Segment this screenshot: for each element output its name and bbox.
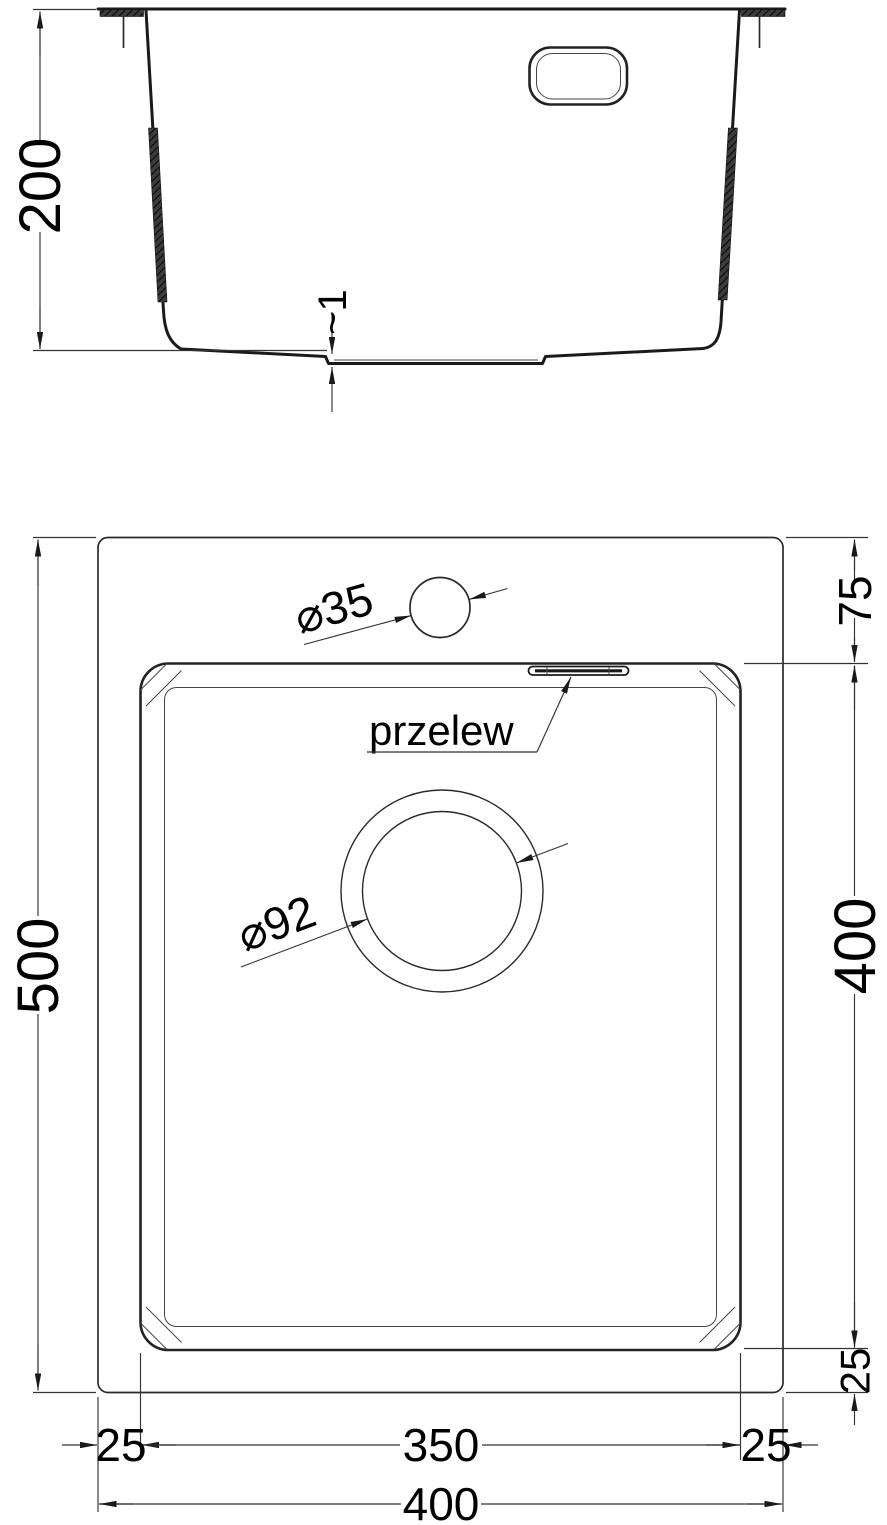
bowl-profile [146,11,740,364]
outer-rect [98,538,783,1393]
overflow-label: przelew [369,707,514,754]
dim-depth-label: 200 [8,138,73,235]
dim-depth-200: 200 [8,10,327,351]
right-wall-clip [718,128,737,300]
drain-inner-circle [363,812,522,971]
dim-margin-left-label: 25 [95,1419,146,1471]
drain-outer-circle [341,790,543,992]
dim-bowl-width-label: 350 [403,1419,480,1471]
overflow-slot [529,667,629,676]
overflow-opening-inner [537,54,621,100]
dim-drain: ⌀92 [230,844,568,968]
bowl-corner-chamfers [141,664,741,1350]
dim-row-bowl-width: 25 350 25 [62,1419,818,1471]
overflow-callout: przelew [367,677,571,754]
dim-width-overall-label: 400 [403,1478,480,1525]
dim-faucet-hole: ⌀35 [289,572,508,644]
technical-drawing-sink: 200 ~1 [0,0,887,1525]
dim-step-label: ~1 [311,289,355,335]
left-flange [100,10,144,17]
dim-bowl-height: 400 [744,666,887,1349]
dim-drain-label: ⌀92 [230,885,322,962]
section-view: 200 ~1 [8,9,785,412]
drawing-svg: 200 ~1 [0,0,887,1525]
dim-margin-bottom-label: 25 [832,1348,879,1395]
bowl-rim-inner [165,688,717,1327]
dim-bowl-height-label: 400 [823,898,887,995]
plan-view: ⌀35 ⌀92 przelew 500 [6,538,887,1525]
dim-height-overall: 500 [6,538,96,1393]
dim-faucet-label: ⌀35 [289,572,379,643]
right-flange [742,10,786,17]
dim-height-label: 500 [6,918,71,1015]
dim-width-overall: 400 [99,1478,782,1525]
bowl-rim-outer [141,664,741,1351]
dim-rim-top-label: 75 [829,575,881,626]
left-wall-clip [149,128,168,302]
dim-margin-bottom: 25 [786,1348,879,1425]
dim-rim-top: 75 [744,538,881,664]
dim-margin-right-label: 25 [740,1419,791,1471]
faucet-hole-circle [410,578,470,638]
